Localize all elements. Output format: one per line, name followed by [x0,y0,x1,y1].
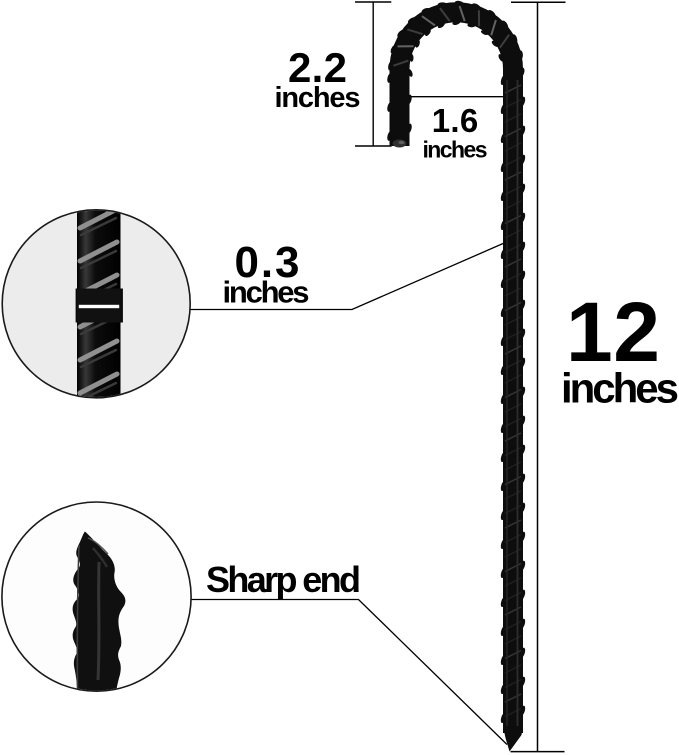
svg-text:1.6: 1.6 [432,102,479,139]
svg-text:Sharp end: Sharp end [206,559,361,600]
svg-text:inches: inches [275,82,361,114]
svg-text:inches: inches [423,137,488,163]
svg-text:inches: inches [223,275,310,310]
svg-text:inches: inches [561,365,679,412]
